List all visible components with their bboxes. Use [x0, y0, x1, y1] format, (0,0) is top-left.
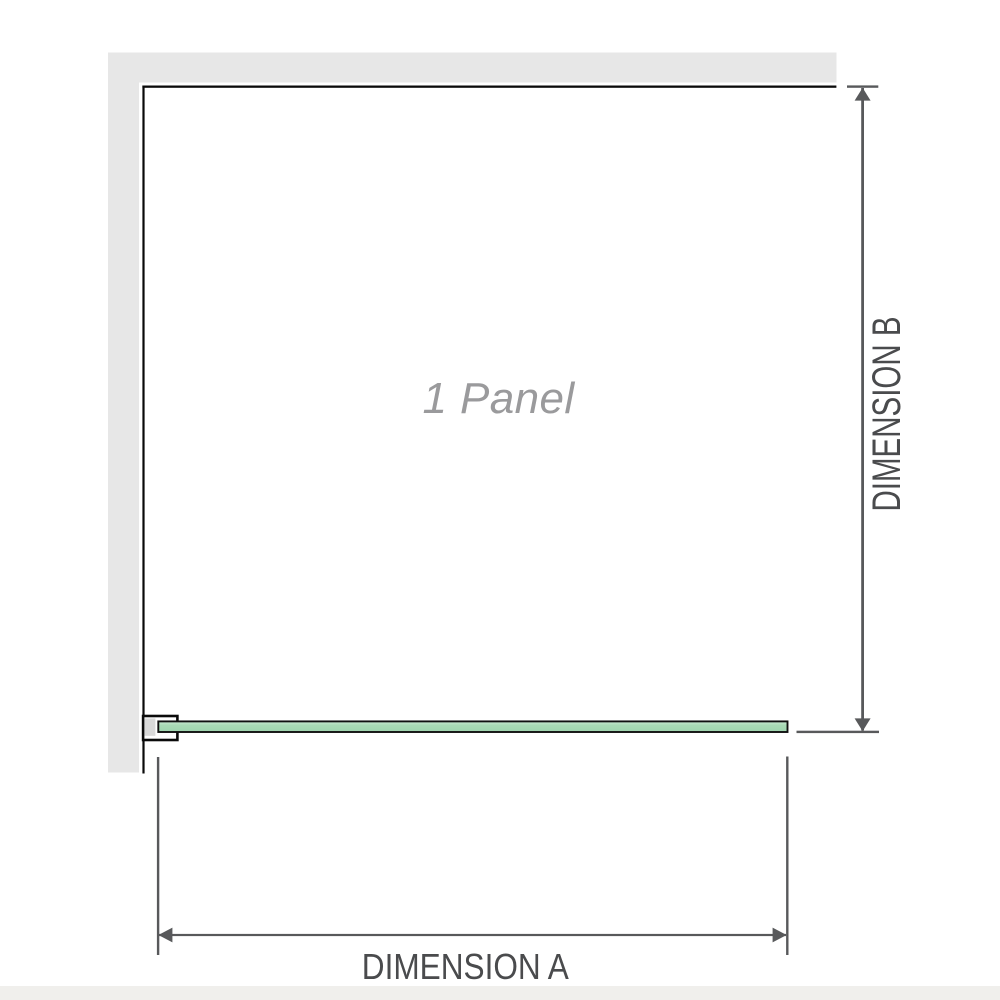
svg-text:DIMENSION A: DIMENSION A [362, 946, 569, 987]
svg-text:DIMENSION B: DIMENSION B [865, 317, 909, 512]
svg-text:1 Panel: 1 Panel [423, 374, 576, 423]
